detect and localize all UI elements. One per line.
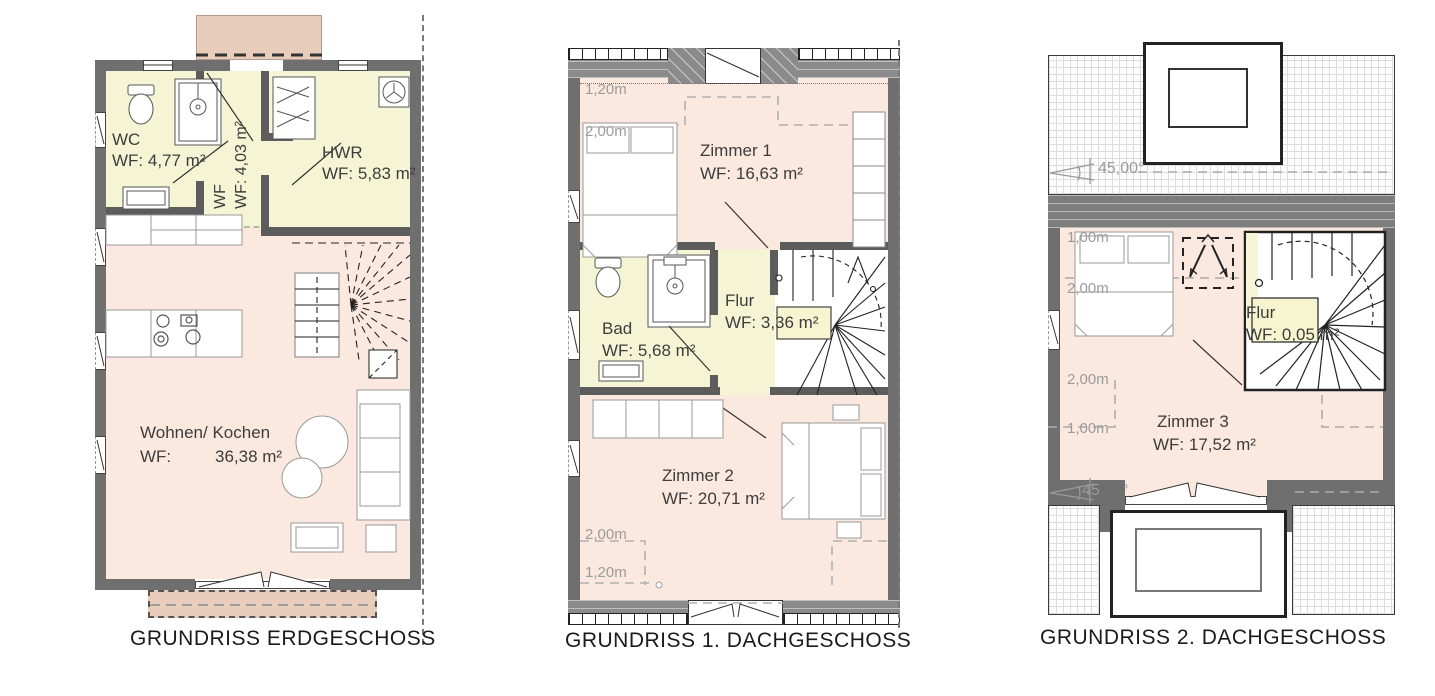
terrace <box>148 590 377 618</box>
dim-200-lower: 2,00m <box>1067 371 1109 388</box>
roof-surface-bottom-left <box>1048 505 1100 615</box>
floor-plan-sheet: { "figure": {"type": "architectural-floo… <box>0 0 1435 696</box>
plan-dachgeschoss-1: 1,20m 2,00m Zimmer 1 WF: 16,63 m² Bad WF… <box>565 45 905 627</box>
dim-200-upper: 2,00m <box>1067 280 1109 297</box>
wall-left-a <box>568 78 580 190</box>
window-bottom <box>1125 496 1267 505</box>
wall-hwr-left-a <box>261 71 269 139</box>
room-label-flur-name: Flur <box>725 291 754 311</box>
room-label-zimmer1-name: Zimmer 1 <box>700 141 772 161</box>
eave-tiles-top-left <box>568 48 668 60</box>
dormer-opening-top <box>705 48 761 84</box>
wall-left-4 <box>95 370 106 436</box>
title-dachgeschoss-1: GRUNDRISS 1. DACHGESCHOSS <box>565 629 905 653</box>
eave-tiles-top-right <box>798 48 900 60</box>
wall-row-bottom-a <box>580 387 720 395</box>
wall-hwr-left-b <box>261 175 269 227</box>
dormer-opening-bottom <box>688 600 783 625</box>
room-label-flur-area: WF: 3,36 m² <box>725 313 819 333</box>
wall-bad-top-a <box>580 242 715 250</box>
wall-hwr-left-stub <box>261 133 293 141</box>
title-dachgeschoss-2: GRUNDRISS 2. DACHGESCHOSS <box>1040 626 1375 650</box>
wall-left-2 <box>95 148 106 228</box>
wall-row-bottom-b <box>770 387 888 395</box>
wall-right <box>1383 228 1395 505</box>
wall-right <box>410 60 421 590</box>
wall-band-upper <box>1048 195 1395 228</box>
wall-left-b <box>568 223 580 310</box>
roof-angle-top: 45,00° <box>1098 160 1144 178</box>
room-label-living-name: Wohnen/ Kochen <box>140 423 270 443</box>
party-wall-line-plan1 <box>422 15 424 645</box>
room-label-zimmer2-area: WF: 20,71 m² <box>662 489 765 509</box>
wall-wc-right-a <box>196 71 204 145</box>
room-label-bad-area: WF: 5,68 m² <box>602 341 696 361</box>
roof-surface-bottom-right <box>1292 505 1395 615</box>
wall-wc-bottom <box>106 207 204 215</box>
window-left-3 <box>568 440 580 477</box>
wall-bad-right-a <box>710 250 718 315</box>
wall-stairs-top <box>780 242 888 250</box>
dim-top-120: 1,20m <box>585 81 627 98</box>
dormer-top-inner <box>1168 68 1248 128</box>
room-label-zimmer1-area: WF: 16,63 m² <box>700 164 803 184</box>
dormer-cheek-right <box>761 48 798 84</box>
eave-tiles-bottom-left <box>568 613 688 625</box>
wall-top-2 <box>173 60 230 71</box>
eave-tiles-bottom-right <box>783 613 900 625</box>
wall-left-1 <box>95 60 106 112</box>
window-left-1 <box>568 190 580 223</box>
wall-left-a <box>1048 228 1060 310</box>
plan-dachgeschoss-2: 45,00° 1,00m 2,00m 2,00m 1,00m Flur WF: … <box>1040 30 1400 630</box>
dim-100-upper: 1,00m <box>1067 229 1109 246</box>
dormer-cheek-left <box>668 48 705 84</box>
wall-left-3 <box>95 266 106 332</box>
window-left <box>1048 310 1060 350</box>
wall-flur-stairs <box>770 250 778 295</box>
window-left-3 <box>95 332 106 370</box>
room-label-corridor-name: WF <box>210 89 231 209</box>
window-top-right <box>338 60 368 71</box>
room-label-living-wf: WF: <box>140 447 171 467</box>
window-left-4 <box>95 436 106 474</box>
wall-bottom-1 <box>95 579 195 590</box>
room-label-wc-area: WF: 4,77 m² <box>112 151 206 171</box>
room-label-flur-name: Flur <box>1246 303 1275 323</box>
wall-top-3 <box>283 60 338 71</box>
room-label-bad-name: Bad <box>602 319 632 339</box>
window-bottom <box>195 581 330 589</box>
window-left-1 <box>95 112 106 148</box>
dim-bottom-120: 1,20m <box>585 564 627 581</box>
wall-left-5 <box>95 474 106 590</box>
plan-erdgeschoss: WC WF: 4,77 m² WF WF: 4,03 m² HWR WF: 5,… <box>95 15 425 630</box>
room-label-corridor: WF WF: 4,03 m² <box>210 89 254 209</box>
wall-bottom-2 <box>330 579 421 590</box>
wall-left-c <box>568 360 580 440</box>
wall-left-d <box>568 477 580 600</box>
window-left-2 <box>568 310 580 360</box>
dim-100-lower: 1,00m <box>1067 420 1109 437</box>
room-label-hwr-area: WF: 5,83 m² <box>322 164 416 184</box>
title-erdgeschoss: GRUNDRISS ERDGESCHOSS <box>130 627 430 651</box>
dim-top-200: 2,00m <box>585 123 627 140</box>
window-left-2 <box>95 228 106 266</box>
entry-porch <box>196 15 322 60</box>
room-label-hwr-name: HWR <box>322 143 363 163</box>
party-wall-line-plan2 <box>898 40 900 628</box>
dim-bottom-200: 2,00m <box>585 526 627 543</box>
room-label-zimmer3-name: Zimmer 3 <box>1157 412 1229 432</box>
room-label-zimmer2-name: Zimmer 2 <box>662 466 734 486</box>
room-label-corridor-area: WF: 4,03 m² <box>231 89 252 209</box>
room-label-living-area: 36,38 m² <box>215 447 282 467</box>
wall-hwr-bottom <box>261 227 410 236</box>
room-label-zimmer3-area: WF: 17,52 m² <box>1153 435 1256 455</box>
room-label-wc-name: WC <box>112 130 140 150</box>
window-top-left <box>143 60 173 71</box>
bad-floor <box>580 250 718 395</box>
dormer-bottom-inner <box>1135 528 1262 592</box>
room-label-flur-area: WF: 0,05 m² <box>1246 325 1340 345</box>
wall-bottom-right <box>1292 480 1395 505</box>
